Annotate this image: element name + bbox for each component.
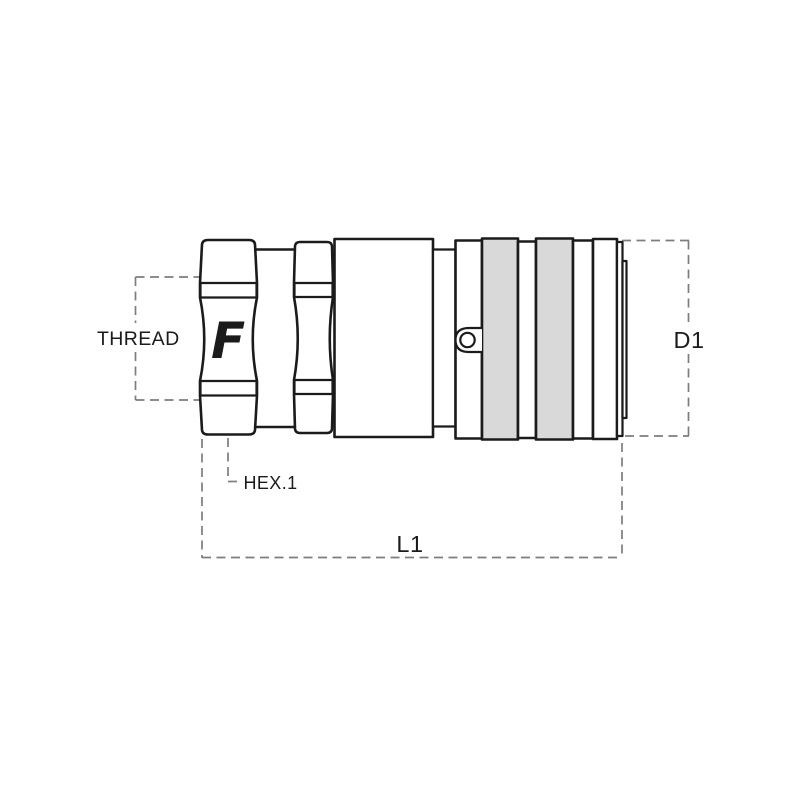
- dimension-d1: D1: [622, 241, 705, 437]
- coupling-part: F: [200, 239, 627, 440]
- hex-facet-band: [201, 381, 257, 396]
- detent-ball: [460, 333, 474, 347]
- sleeve-band-gray-2: [536, 239, 573, 440]
- hex-facet-band: [295, 283, 333, 297]
- d1-label: D1: [673, 327, 704, 353]
- step-collar: [433, 250, 456, 427]
- coupling-face-bore: [623, 261, 627, 418]
- sleeve-end-ring: [593, 239, 617, 439]
- thread-label: THREAD: [97, 328, 180, 350]
- connecting-collar: [256, 250, 295, 428]
- detent-ball-assembly: [456, 328, 483, 352]
- dimension-thread: THREAD: [97, 277, 199, 400]
- drawing-canvas: THREAD HEX.1 L1 D1 F: [0, 0, 800, 800]
- l1-label: L1: [396, 531, 423, 557]
- hex-nut-front: F: [200, 240, 257, 435]
- sleeve-band-white-2: [573, 241, 593, 439]
- sleeve-band-gray-1: [482, 239, 518, 440]
- dimension-l1: L1: [202, 439, 622, 558]
- hex1-label: HEX.1: [244, 473, 298, 493]
- sleeve-band-gap: [518, 242, 536, 439]
- hex-facet-band: [295, 380, 333, 394]
- brand-logo-f: F: [211, 312, 245, 370]
- hex-facet-band: [201, 283, 257, 298]
- hex-nut-rear: [294, 242, 333, 433]
- valve-body: [335, 239, 434, 437]
- technical-drawing-svg: THREAD HEX.1 L1 D1 F: [0, 0, 800, 800]
- hex-nut-rear-outline: [294, 242, 333, 433]
- dimension-hex1: HEX.1: [228, 438, 298, 493]
